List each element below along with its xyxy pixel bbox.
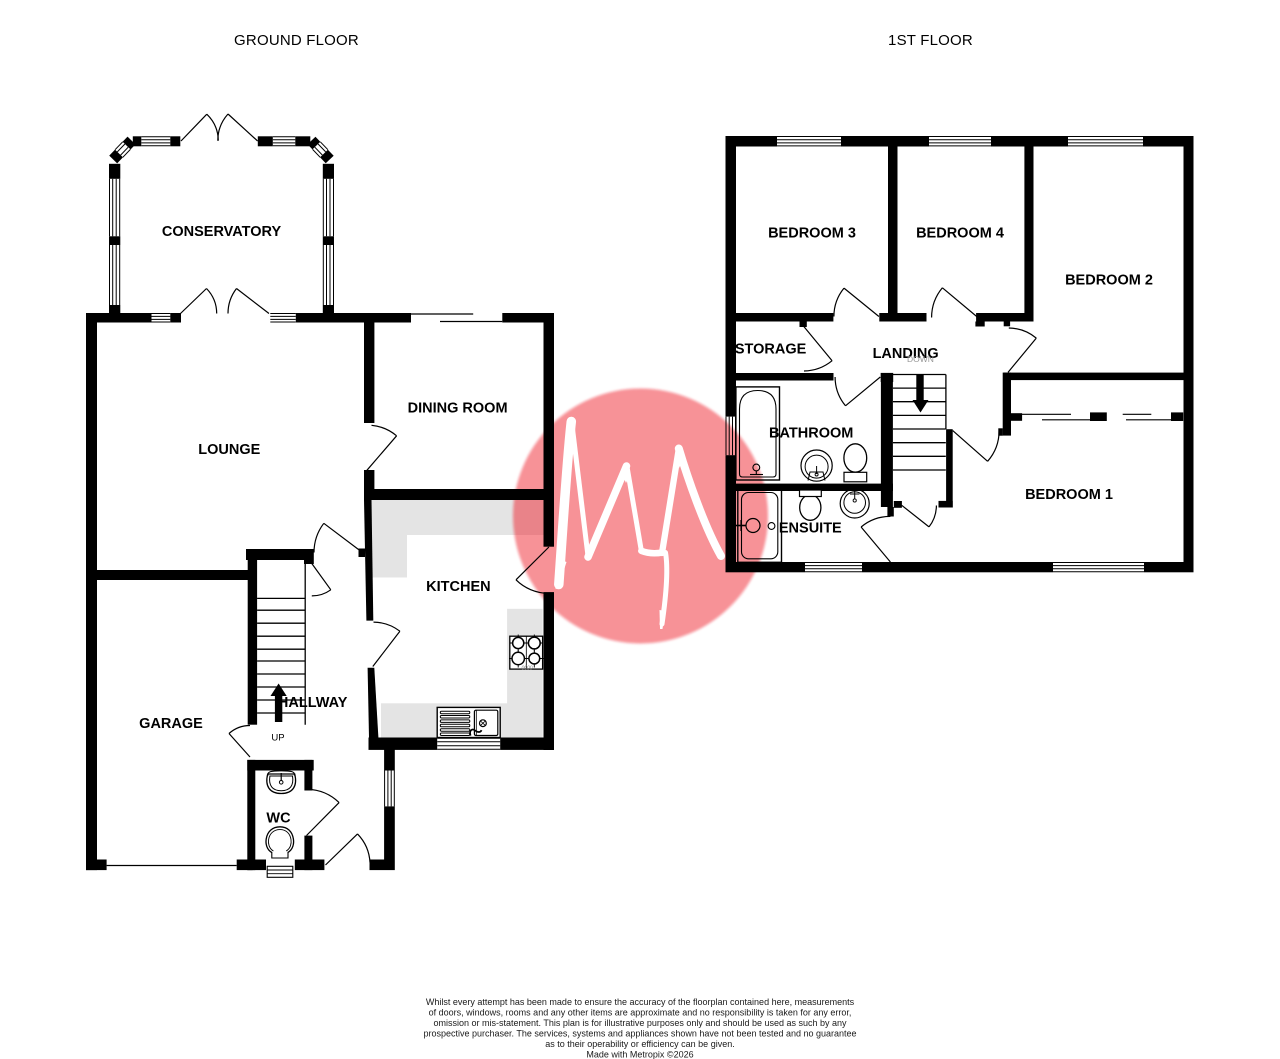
svg-text:BEDROOM 4: BEDROOM 4 — [916, 226, 1004, 242]
svg-text:Made with Metropix ©2026: Made with Metropix ©2026 — [586, 1050, 693, 1059]
svg-text:DINING ROOM: DINING ROOM — [408, 401, 508, 417]
svg-text:ENSUITE: ENSUITE — [779, 521, 842, 537]
svg-text:as to their operability or eff: as to their operability or efficiency ca… — [545, 1039, 734, 1049]
svg-text:UP: UP — [271, 733, 284, 744]
svg-text:WC: WC — [266, 811, 291, 827]
svg-text:BATHROOM: BATHROOM — [769, 426, 853, 442]
svg-text:STORAGE: STORAGE — [735, 342, 807, 358]
svg-text:GROUND FLOOR: GROUND FLOOR — [234, 32, 359, 49]
svg-text:prospective purchaser. The ser: prospective purchaser. The services, sys… — [423, 1029, 856, 1039]
svg-text:CONSERVATORY: CONSERVATORY — [162, 224, 282, 240]
svg-text:GARAGE: GARAGE — [139, 716, 203, 732]
svg-text:LOUNGE: LOUNGE — [198, 442, 260, 458]
svg-text:0000: 0000 — [521, 666, 532, 672]
svg-text:omission or mis-statement. Thi: omission or mis-statement. This plan is … — [433, 1018, 847, 1028]
svg-text:BEDROOM 3: BEDROOM 3 — [768, 226, 856, 242]
svg-text:Whilst every attempt has been: Whilst every attempt has been made to en… — [426, 997, 855, 1007]
svg-text:1ST FLOOR: 1ST FLOOR — [888, 32, 973, 49]
svg-text:BEDROOM 2: BEDROOM 2 — [1065, 273, 1153, 289]
svg-text:BEDROOM 1: BEDROOM 1 — [1025, 487, 1113, 503]
svg-text:of doors, windows, rooms and a: of doors, windows, rooms and any other i… — [429, 1008, 852, 1018]
svg-text:DOWN: DOWN — [907, 354, 934, 364]
svg-text:HALLWAY: HALLWAY — [278, 695, 348, 711]
svg-text:KITCHEN: KITCHEN — [426, 579, 490, 595]
